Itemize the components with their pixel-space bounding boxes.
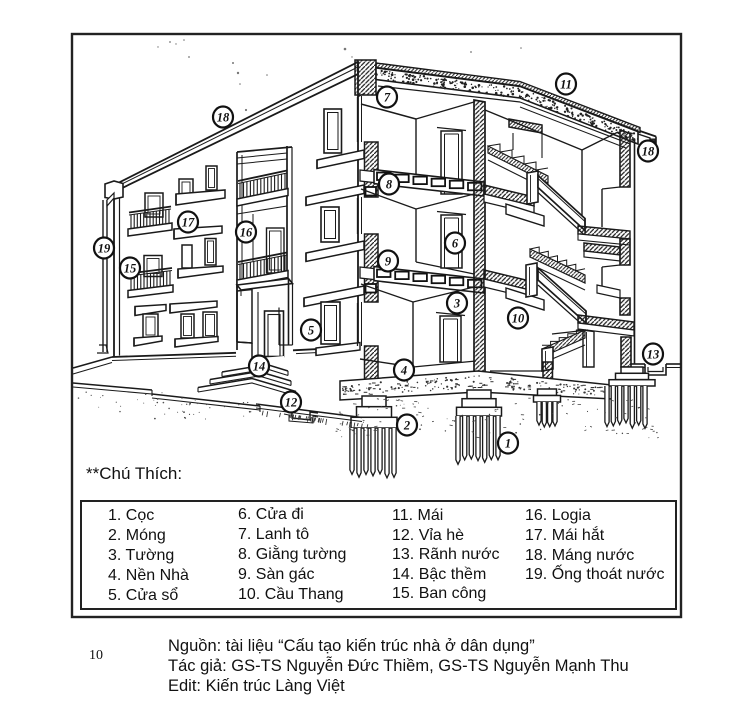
svg-text:7: 7 <box>384 90 391 104</box>
svg-text:3: 3 <box>453 296 460 310</box>
svg-text:6: 6 <box>452 236 459 250</box>
svg-text:1: 1 <box>505 436 511 450</box>
svg-text:9: 9 <box>385 254 392 268</box>
svg-text:4: 4 <box>400 363 407 377</box>
svg-text:2: 2 <box>403 418 410 432</box>
svg-text:12: 12 <box>285 395 298 409</box>
svg-text:13: 13 <box>647 347 660 361</box>
svg-text:5: 5 <box>308 323 314 337</box>
svg-text:8: 8 <box>386 177 393 191</box>
svg-text:11: 11 <box>560 77 572 91</box>
svg-text:14: 14 <box>253 359 266 373</box>
svg-text:18: 18 <box>642 144 655 158</box>
svg-text:10: 10 <box>512 311 525 325</box>
svg-text:17: 17 <box>182 215 195 229</box>
svg-text:16: 16 <box>240 225 253 239</box>
svg-text:15: 15 <box>124 261 137 275</box>
svg-text:18: 18 <box>217 110 230 124</box>
svg-text:19: 19 <box>98 241 111 255</box>
